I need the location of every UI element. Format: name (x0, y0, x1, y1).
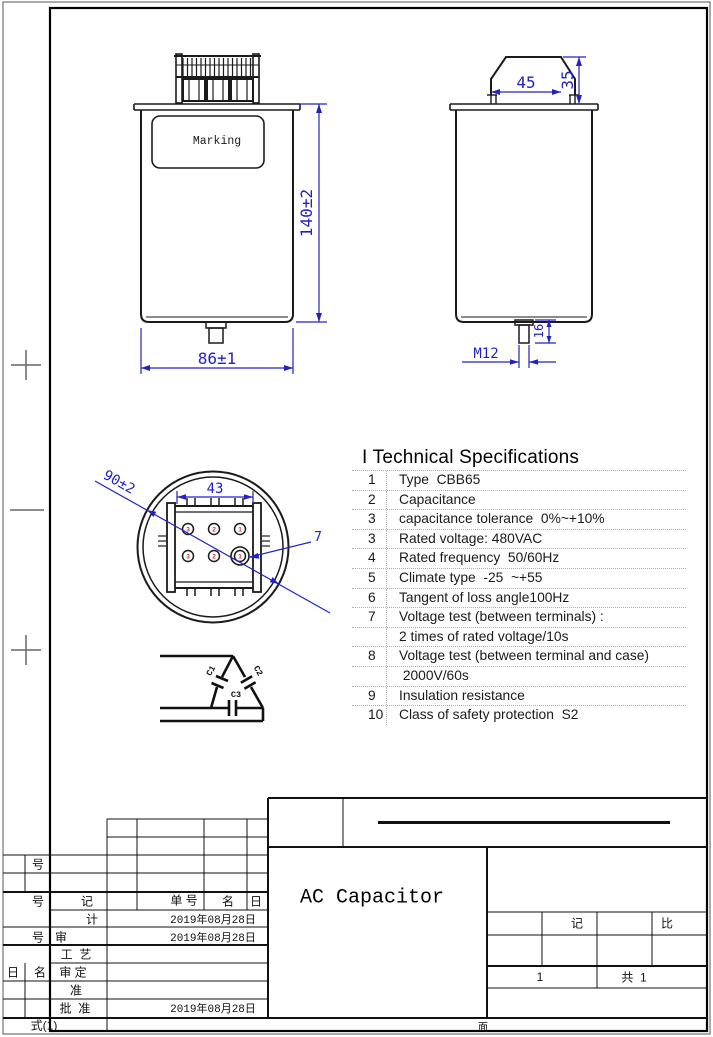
tb-ming: 名 (222, 893, 234, 910)
tb-dan-hao: 单 号 (170, 892, 197, 909)
spec-title: I Technical Specifications (352, 446, 686, 470)
approve-date: 2019年08月28日 (170, 1000, 256, 1016)
schematic: C1 C2 C3 (160, 656, 265, 721)
side-stud (515, 320, 533, 343)
dim-cover-height: 35 (558, 70, 577, 89)
top-terminal-block: 3 2 1 3 2 1 (158, 498, 270, 596)
product-name: AC Capacitor (300, 887, 444, 910)
dim-front-height: 140±2 (297, 189, 316, 237)
spec-row: 8Voltage test (between terminal and case… (352, 646, 686, 666)
marking-label: Marking (193, 135, 241, 148)
front-stud (206, 322, 226, 343)
drawing-sheet: Marking (0, 0, 713, 1037)
dim-cover-width: 45 (516, 73, 535, 92)
svg-text:1: 1 (238, 527, 242, 534)
svg-text:2: 2 (212, 527, 216, 534)
spec-row: 2 times of rated voltage/10s (352, 627, 686, 647)
tb-ming2: 名 (34, 964, 46, 981)
page-number: 1 (537, 970, 544, 984)
front-view: Marking (134, 54, 300, 343)
tb-hao-top: 号 (32, 856, 44, 873)
spec-row: 1Type CBB65 (352, 470, 686, 490)
spec-row: 4Rated frequency 50/60Hz (352, 548, 686, 568)
spec-row: 6Tangent of loss angle100Hz (352, 588, 686, 608)
cap-c2-label: C2 (251, 664, 265, 678)
spec-row: 3capacitance tolerance 0%~+10% (352, 509, 686, 529)
tb-ri: 日 (250, 893, 262, 910)
tb-zhun: 准 (70, 982, 82, 999)
tb-gong-yi: 工 艺 (61, 946, 92, 963)
sheet-total: 共 1 (621, 969, 646, 986)
svg-text:2: 2 (212, 554, 216, 561)
spec-row: 2Capacitance (352, 490, 686, 510)
tb-bi: 比 (661, 915, 673, 932)
tb-ji-design: 计 (86, 911, 98, 928)
side-flange (450, 104, 598, 110)
front-terminal-assembly (174, 54, 261, 103)
side-body (456, 110, 592, 322)
tb-ji-mark: 记 (81, 893, 93, 910)
dim-stud-length: 16 (532, 324, 546, 338)
tb-shen-ding: 审 定 (59, 964, 86, 981)
cap-c3-label: C3 (231, 690, 241, 700)
spec-row: 3Rated voltage: 480VAC (352, 529, 686, 549)
front-flange (134, 104, 300, 110)
tb-ji-mark2: 记 (571, 915, 583, 932)
side-view (450, 57, 598, 343)
tb-pi-zhun: 批 准 (60, 1000, 91, 1017)
spec-list: I Technical Specifications 1Type CBB65 2… (352, 446, 686, 725)
check-date: 2019年08月28日 (170, 929, 256, 945)
dim-hole: 7 (314, 530, 322, 545)
tb-hao-mid: 号 (32, 929, 44, 946)
tb-ri2: 日 (7, 964, 19, 981)
design-date: 2019年08月28日 (170, 911, 256, 927)
dim-stud-thread: M12 (473, 346, 498, 362)
title-block-grid (3, 798, 707, 1031)
dim-diameter: 90±2 (100, 467, 137, 497)
spec-row: 7Voltage test (between terminals) : (352, 607, 686, 627)
svg-text:1: 1 (238, 554, 242, 561)
tb-shen: 审 (55, 929, 67, 946)
svg-text:3: 3 (186, 554, 190, 561)
dim-terminal-span: 43 (207, 481, 224, 497)
tb-mian: 面 (478, 1019, 488, 1034)
tb-shi-1: 式(1) (31, 1017, 58, 1034)
fold-marks (10, 350, 44, 665)
dim-front-width: 86±1 (198, 349, 237, 368)
spec-row: 10Class of safety protection S2 (352, 705, 686, 725)
spec-row: 2000V/60s (352, 666, 686, 686)
spec-row: 5Climate type -25 ~+55 (352, 568, 686, 588)
tb-hao-header: 号 (32, 893, 44, 910)
spec-row: 9Insulation resistance (352, 686, 686, 706)
